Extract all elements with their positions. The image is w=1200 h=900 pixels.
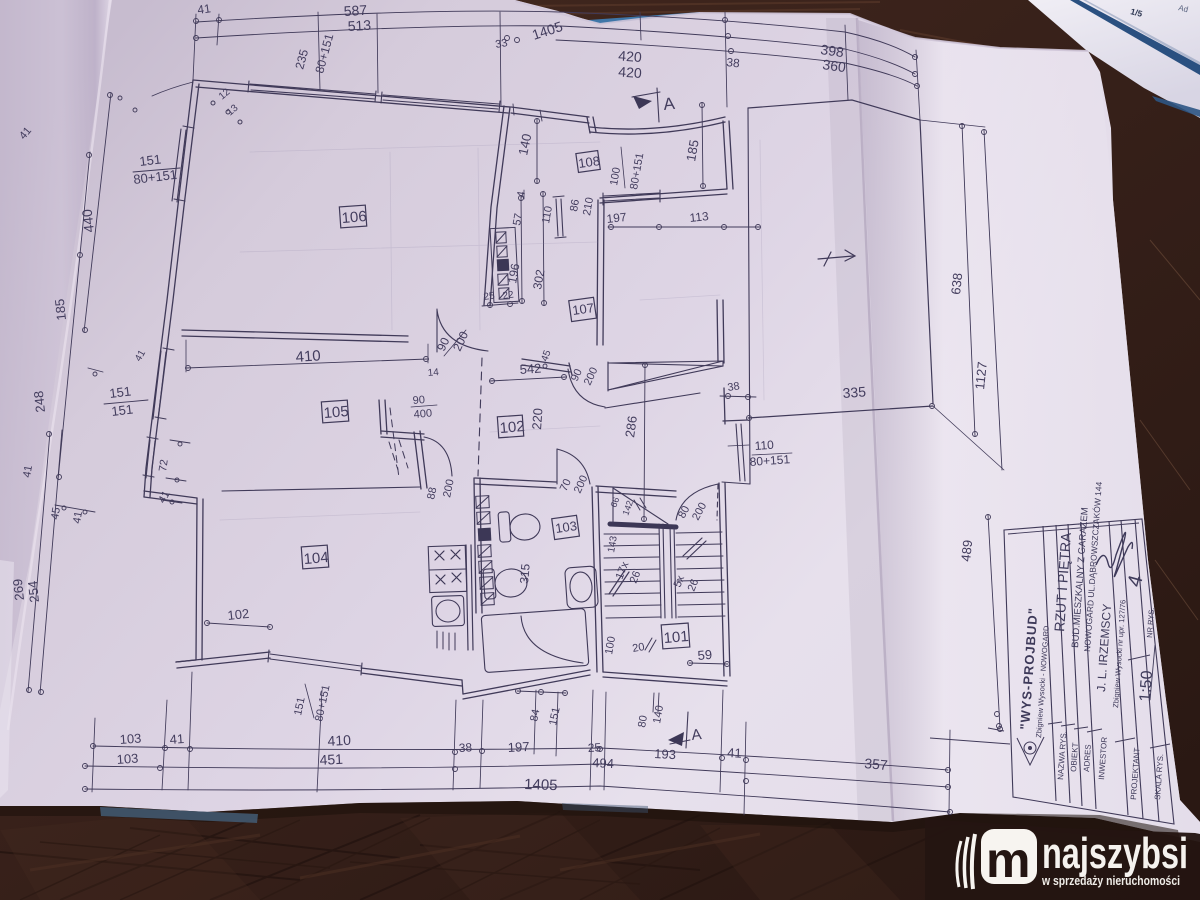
svg-text:1405: 1405	[524, 776, 558, 794]
svg-text:45: 45	[49, 506, 63, 520]
svg-text:80+151: 80+151	[749, 452, 791, 469]
svg-text:286: 286	[622, 415, 640, 439]
svg-text:542: 542	[519, 361, 542, 377]
svg-text:105: 105	[323, 403, 349, 422]
svg-text:22: 22	[502, 289, 515, 302]
svg-text:151: 151	[109, 383, 132, 401]
svg-text:80: 80	[636, 714, 650, 728]
svg-text:220: 220	[529, 408, 545, 431]
svg-text:108: 108	[577, 153, 601, 171]
svg-text:357: 357	[864, 755, 889, 773]
svg-text:151: 151	[111, 401, 134, 419]
svg-text:14: 14	[427, 367, 439, 379]
svg-text:420: 420	[618, 47, 643, 65]
svg-text:440: 440	[79, 208, 97, 233]
svg-text:1:50: 1:50	[1137, 670, 1156, 702]
svg-text:489: 489	[958, 539, 975, 562]
svg-text:ADRES: ADRES	[1082, 744, 1093, 772]
svg-text:57: 57	[511, 212, 525, 226]
svg-text:315: 315	[517, 563, 533, 584]
svg-text:400: 400	[413, 407, 432, 421]
svg-text:41: 41	[196, 1, 211, 17]
svg-text:254: 254	[25, 580, 42, 603]
svg-text:38: 38	[727, 380, 741, 394]
svg-text:107: 107	[571, 300, 595, 318]
svg-text:41: 41	[21, 464, 35, 478]
svg-text:w sprzedaży nieruchomości: w sprzedaży nieruchomości	[1041, 873, 1180, 888]
svg-text:103: 103	[554, 518, 578, 536]
svg-text:248: 248	[31, 390, 48, 413]
svg-text:410: 410	[327, 732, 351, 749]
svg-text:269: 269	[10, 578, 27, 601]
svg-text:1127: 1127	[972, 361, 990, 390]
svg-text:110: 110	[754, 438, 774, 453]
svg-text:102: 102	[499, 418, 525, 437]
svg-text:410: 410	[295, 347, 321, 366]
svg-text:513: 513	[347, 17, 371, 34]
svg-text:151: 151	[139, 151, 162, 169]
svg-text:193: 193	[654, 746, 676, 762]
svg-text:20: 20	[631, 641, 645, 655]
svg-text:88: 88	[425, 486, 439, 500]
svg-text:335: 335	[842, 383, 867, 401]
svg-text:86: 86	[568, 198, 582, 212]
svg-text:A: A	[691, 726, 703, 744]
svg-text:103: 103	[116, 751, 139, 767]
svg-text:25: 25	[483, 290, 496, 303]
svg-text:38: 38	[458, 740, 472, 755]
svg-text:451: 451	[319, 751, 343, 768]
svg-text:420: 420	[618, 63, 643, 81]
svg-text:84: 84	[528, 708, 542, 722]
svg-text:41: 41	[169, 731, 184, 747]
svg-text:185: 185	[52, 298, 69, 321]
svg-text:59: 59	[697, 647, 713, 663]
svg-text:najszybsi: najszybsi	[1042, 829, 1188, 878]
svg-text:41: 41	[727, 745, 742, 761]
svg-text:101: 101	[663, 628, 689, 647]
svg-text:494: 494	[592, 755, 614, 771]
svg-text:197: 197	[507, 739, 529, 755]
svg-text:72: 72	[157, 459, 171, 473]
svg-text:638: 638	[948, 272, 965, 295]
svg-text:33: 33	[494, 37, 508, 51]
svg-text:m: m	[986, 832, 1030, 888]
svg-text:90: 90	[412, 394, 425, 407]
svg-text:104: 104	[303, 549, 329, 568]
svg-text:106: 106	[341, 208, 367, 227]
svg-text:360: 360	[822, 56, 848, 75]
svg-text:38: 38	[726, 55, 741, 70]
svg-text:113: 113	[689, 209, 710, 225]
svg-text:197: 197	[606, 210, 628, 226]
svg-text:103: 103	[119, 731, 142, 747]
svg-text:25: 25	[587, 740, 601, 755]
svg-text:102: 102	[227, 606, 250, 623]
